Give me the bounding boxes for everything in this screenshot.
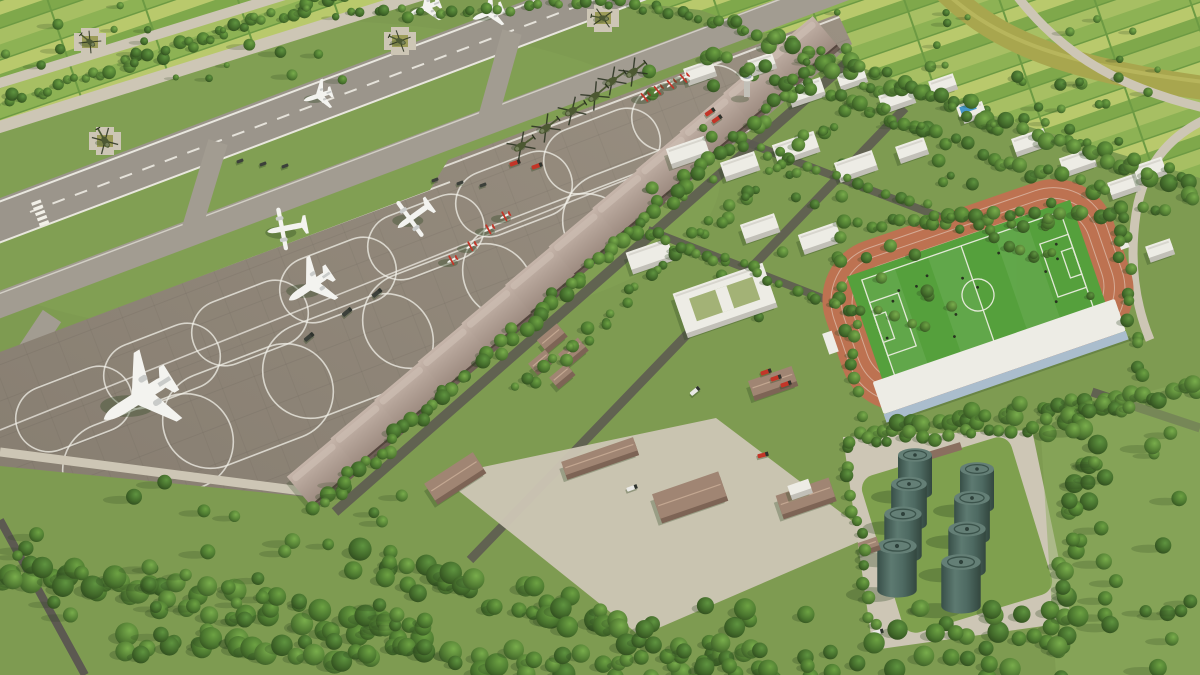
tree xyxy=(907,319,917,329)
tree xyxy=(973,219,984,230)
tree xyxy=(322,539,334,551)
tree xyxy=(550,597,572,619)
tree xyxy=(520,322,535,337)
tree xyxy=(855,306,865,316)
tree xyxy=(1143,88,1153,98)
tree xyxy=(889,121,898,130)
tree xyxy=(694,15,702,23)
tree xyxy=(1028,207,1041,220)
tree xyxy=(1132,337,1143,348)
tree xyxy=(495,348,508,361)
tree xyxy=(787,74,798,85)
tree xyxy=(856,577,869,590)
tree xyxy=(398,558,414,574)
tree xyxy=(132,646,150,664)
tree xyxy=(948,102,957,111)
tree xyxy=(153,627,169,643)
tree xyxy=(716,217,728,229)
tree xyxy=(417,413,430,426)
tree xyxy=(1095,100,1104,109)
tree xyxy=(492,5,501,14)
tree xyxy=(1030,251,1038,259)
tree xyxy=(988,232,999,243)
tree xyxy=(667,197,680,210)
tree xyxy=(266,8,275,17)
tree xyxy=(917,122,925,130)
tree xyxy=(1164,162,1175,173)
tree xyxy=(1183,594,1197,608)
tree xyxy=(1066,532,1080,546)
tree xyxy=(834,254,847,267)
tree xyxy=(291,594,307,610)
tree xyxy=(728,131,739,142)
tree xyxy=(639,7,647,15)
tree xyxy=(816,46,825,55)
tree xyxy=(843,174,851,182)
tree xyxy=(173,74,179,80)
tree xyxy=(871,619,882,630)
tree xyxy=(1088,456,1100,468)
tree xyxy=(792,286,803,297)
tree xyxy=(221,580,236,595)
tree xyxy=(179,569,191,581)
tree xyxy=(308,599,331,622)
tree xyxy=(853,386,865,398)
tree xyxy=(1040,413,1053,426)
tree xyxy=(1086,292,1094,300)
tree xyxy=(684,11,693,20)
tree xyxy=(36,60,45,69)
tree xyxy=(581,321,595,335)
tree xyxy=(1113,252,1125,264)
tree xyxy=(1141,167,1154,180)
tree xyxy=(961,136,975,150)
tree xyxy=(876,272,887,283)
tree xyxy=(723,199,735,211)
tree xyxy=(161,46,171,56)
tree xyxy=(1127,153,1141,167)
tree xyxy=(186,599,201,614)
tree xyxy=(287,69,298,80)
tree xyxy=(348,538,371,561)
tree xyxy=(505,7,515,17)
tree xyxy=(1096,553,1112,569)
tree xyxy=(126,489,142,505)
tree xyxy=(306,501,320,515)
tree xyxy=(338,75,347,84)
tree xyxy=(3,570,23,590)
tree xyxy=(863,183,874,194)
tree xyxy=(548,354,557,363)
tree xyxy=(1129,27,1136,34)
tree xyxy=(840,469,854,483)
tree xyxy=(798,67,810,79)
tree xyxy=(526,651,543,668)
tree xyxy=(278,545,291,558)
tree xyxy=(32,557,54,579)
tree xyxy=(1053,207,1066,220)
tree xyxy=(852,516,862,526)
tree xyxy=(398,4,406,12)
tree xyxy=(960,651,975,666)
tree xyxy=(1100,185,1110,195)
tree xyxy=(741,192,750,201)
tree xyxy=(1034,102,1043,111)
tree xyxy=(981,656,998,673)
tree xyxy=(1093,15,1101,23)
tree xyxy=(874,306,883,315)
tree xyxy=(370,457,382,469)
tree xyxy=(344,561,362,579)
tree xyxy=(389,607,404,622)
tree xyxy=(923,199,932,208)
tree xyxy=(592,252,605,265)
tree xyxy=(1013,605,1030,622)
tree xyxy=(229,511,240,522)
tree xyxy=(199,627,222,650)
tree xyxy=(1186,192,1199,205)
tree xyxy=(893,214,905,226)
tree xyxy=(635,620,653,638)
tree xyxy=(1066,139,1081,154)
tree xyxy=(494,334,507,347)
tree xyxy=(982,600,1001,619)
tree xyxy=(734,598,756,620)
tree xyxy=(1116,56,1123,63)
tree xyxy=(602,320,612,330)
tree xyxy=(1160,174,1178,192)
tree xyxy=(831,300,840,309)
tree xyxy=(686,227,698,239)
tree xyxy=(1113,72,1123,82)
tree xyxy=(709,175,717,183)
tree xyxy=(417,613,433,629)
tree xyxy=(102,65,116,79)
tree xyxy=(1075,78,1084,87)
tree xyxy=(654,5,663,14)
tree xyxy=(1015,245,1026,256)
tree xyxy=(752,268,762,278)
tree xyxy=(1043,164,1053,174)
tree xyxy=(1135,368,1149,382)
tree xyxy=(63,607,78,622)
tree xyxy=(791,138,805,152)
tree xyxy=(197,576,217,596)
tree xyxy=(1041,118,1050,127)
tree xyxy=(797,606,814,623)
tree xyxy=(1081,404,1096,419)
tree xyxy=(624,284,634,294)
tree xyxy=(1088,435,1108,455)
tree xyxy=(671,184,686,199)
tree xyxy=(810,294,821,305)
tree xyxy=(646,182,658,194)
tree xyxy=(402,11,414,23)
tree xyxy=(909,248,921,260)
tree xyxy=(834,231,846,243)
tree xyxy=(859,82,867,90)
tree xyxy=(844,490,856,502)
tree xyxy=(70,74,78,82)
tree xyxy=(642,64,656,78)
tree xyxy=(810,199,820,209)
tree xyxy=(843,436,856,449)
tree xyxy=(943,19,951,27)
tree xyxy=(110,26,117,33)
tree xyxy=(1101,616,1118,633)
tree xyxy=(942,9,949,16)
tree xyxy=(978,409,991,422)
tree xyxy=(237,612,253,628)
airbase-aerial-render xyxy=(0,0,1200,675)
tree xyxy=(713,15,724,26)
tree xyxy=(784,38,801,55)
tree xyxy=(43,88,52,97)
tree xyxy=(933,41,941,49)
tree xyxy=(964,14,970,20)
tree xyxy=(17,93,27,103)
tree xyxy=(1026,628,1041,643)
tree xyxy=(853,320,862,329)
tree xyxy=(1097,469,1113,485)
tree xyxy=(859,560,869,570)
tree xyxy=(704,216,714,226)
tree xyxy=(351,461,367,477)
tree xyxy=(926,623,945,642)
tree xyxy=(357,645,376,664)
tree xyxy=(409,584,427,602)
tree xyxy=(1065,423,1081,439)
tree xyxy=(946,301,957,312)
tree xyxy=(920,321,931,332)
tree xyxy=(47,596,60,609)
tree xyxy=(314,49,324,59)
tree xyxy=(1047,636,1068,657)
tree xyxy=(928,433,942,447)
tree xyxy=(12,550,23,561)
tree xyxy=(929,124,943,138)
tree xyxy=(150,601,162,613)
tree xyxy=(964,94,979,109)
tree xyxy=(675,242,686,253)
tree xyxy=(486,599,502,615)
tree xyxy=(1125,263,1137,275)
tree xyxy=(256,15,265,24)
tree xyxy=(1124,295,1135,306)
tree xyxy=(791,192,801,202)
tree xyxy=(1109,574,1123,588)
tree xyxy=(706,131,718,143)
tree xyxy=(904,195,915,206)
tree xyxy=(938,177,948,187)
tree xyxy=(987,621,1008,642)
tree xyxy=(463,568,485,590)
tree xyxy=(416,639,432,655)
tree xyxy=(747,116,762,131)
tree xyxy=(902,425,916,439)
tree xyxy=(373,598,387,612)
tree xyxy=(920,284,933,297)
tree xyxy=(978,641,993,656)
tree xyxy=(711,633,730,652)
tree xyxy=(823,645,838,660)
tree xyxy=(1154,66,1160,72)
tree xyxy=(446,5,458,17)
tree xyxy=(887,619,907,639)
tree xyxy=(1120,313,1134,327)
tree xyxy=(966,428,976,438)
tree xyxy=(256,591,269,604)
tree xyxy=(835,190,848,203)
tree xyxy=(1137,202,1148,213)
tree xyxy=(1012,396,1028,412)
tree xyxy=(966,178,979,191)
tree xyxy=(267,587,286,606)
tree xyxy=(1012,631,1027,646)
tree xyxy=(584,336,594,346)
tree xyxy=(622,298,633,309)
tree xyxy=(889,310,900,321)
tree xyxy=(1065,27,1074,36)
tree xyxy=(387,434,397,444)
tree xyxy=(157,475,172,490)
tree xyxy=(1012,158,1027,173)
tree xyxy=(1011,70,1023,82)
tree xyxy=(243,39,255,51)
tree xyxy=(1004,425,1017,438)
tree xyxy=(997,112,1014,129)
tree xyxy=(862,591,876,605)
tree xyxy=(720,253,729,262)
tree xyxy=(1055,580,1070,595)
tree xyxy=(416,8,424,16)
tree xyxy=(396,490,408,502)
tree xyxy=(803,58,811,66)
tree xyxy=(758,59,772,73)
tree xyxy=(780,91,790,101)
tree xyxy=(699,124,707,132)
tree xyxy=(775,280,783,288)
tree xyxy=(741,27,749,35)
tree xyxy=(818,127,827,136)
tree xyxy=(676,643,691,658)
tree xyxy=(1165,632,1179,646)
tree xyxy=(74,566,89,581)
tree xyxy=(697,597,714,614)
tree xyxy=(849,655,865,671)
tree xyxy=(376,516,388,528)
tree xyxy=(955,225,964,234)
tree xyxy=(845,358,857,370)
tree xyxy=(1075,174,1086,185)
tree xyxy=(911,600,928,617)
tree xyxy=(763,151,772,160)
tree xyxy=(584,258,595,269)
tree xyxy=(721,51,733,63)
tree xyxy=(275,46,287,58)
tree xyxy=(557,616,578,637)
tree xyxy=(337,476,351,490)
tree xyxy=(1139,605,1151,617)
tree xyxy=(863,632,884,653)
tree xyxy=(645,636,662,653)
tree xyxy=(1054,166,1069,181)
tree xyxy=(29,527,44,542)
tree xyxy=(572,644,590,662)
tree xyxy=(786,155,794,163)
tree xyxy=(690,166,705,181)
tree xyxy=(707,79,720,92)
aerial-render-stage xyxy=(0,0,1200,675)
tree xyxy=(355,7,365,17)
tree xyxy=(511,382,519,390)
tree xyxy=(848,330,860,342)
tree xyxy=(1171,491,1186,506)
tree xyxy=(555,0,563,8)
tree xyxy=(932,154,946,168)
tree xyxy=(131,47,141,57)
tree xyxy=(448,656,463,671)
tree xyxy=(336,489,348,501)
tree xyxy=(52,19,63,30)
tree xyxy=(897,118,910,131)
tree xyxy=(303,5,310,12)
tree xyxy=(859,544,872,557)
tree xyxy=(882,437,892,447)
tree xyxy=(743,62,755,74)
tree xyxy=(458,372,468,382)
tree xyxy=(804,83,817,96)
tree xyxy=(942,429,954,441)
tree xyxy=(773,164,782,173)
tree xyxy=(1017,220,1030,233)
tree xyxy=(929,210,940,221)
tree xyxy=(200,544,215,559)
tree xyxy=(757,143,765,151)
tree xyxy=(660,235,670,245)
tree xyxy=(951,133,961,143)
tree xyxy=(835,89,847,101)
tree xyxy=(224,62,230,68)
tree xyxy=(140,37,148,45)
tree xyxy=(722,658,737,673)
tree xyxy=(836,281,847,292)
tree xyxy=(1114,235,1125,246)
tree xyxy=(767,31,781,45)
tree xyxy=(853,60,865,72)
tree xyxy=(857,528,868,539)
tree xyxy=(990,121,997,128)
tree xyxy=(1047,248,1056,257)
tree xyxy=(848,372,861,385)
tree xyxy=(220,27,226,33)
tree xyxy=(724,617,745,638)
tree xyxy=(1064,124,1075,135)
tree xyxy=(1118,212,1129,223)
tree xyxy=(812,166,821,175)
tree xyxy=(368,507,379,518)
tree xyxy=(205,75,213,83)
tree xyxy=(1016,122,1029,135)
tree xyxy=(141,48,154,61)
tree xyxy=(1054,135,1066,147)
tree xyxy=(882,67,893,78)
tree xyxy=(777,246,789,258)
tree xyxy=(857,411,868,422)
tree xyxy=(1144,437,1161,454)
tree xyxy=(961,111,972,122)
tree xyxy=(1159,204,1171,216)
